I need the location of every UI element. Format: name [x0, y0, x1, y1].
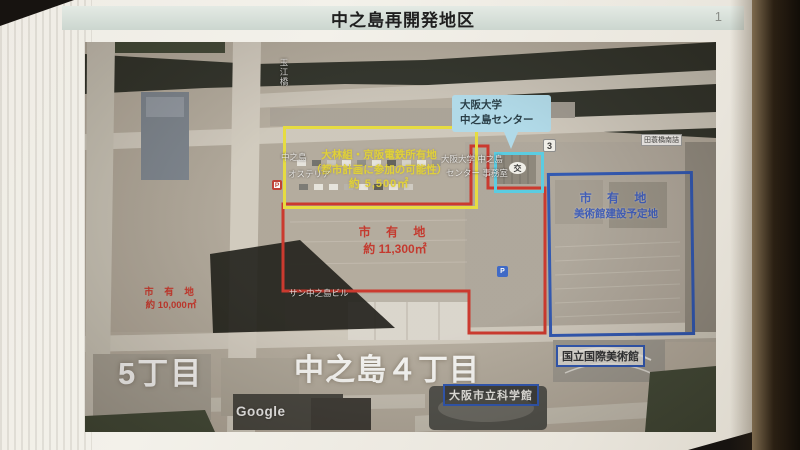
- document-page: 中之島再開発地区 1: [0, 0, 756, 450]
- red-west-parcel-text: 市 有 地 約 10,000㎡: [123, 286, 219, 313]
- label-science-museum: 大阪市立科学館: [443, 384, 539, 406]
- route-number-marker: 3: [543, 139, 556, 152]
- district-label-5chome: 5丁目: [118, 348, 203, 393]
- map-label-handai-office-2: センター 事務室: [446, 167, 508, 179]
- page-number: 1: [715, 9, 722, 24]
- blue-parcel-text: 市 有 地 美術館建設予定地: [557, 190, 675, 221]
- map-label-bridge: 玉江橋: [278, 58, 290, 87]
- callout-line1: 大阪大学: [460, 98, 551, 113]
- red-area: 約 11,300㎡: [337, 241, 453, 258]
- page-title: 中之島再開発地区: [331, 6, 475, 31]
- map-label-handai-office-1: 大阪大学 中之島: [441, 153, 503, 165]
- parking-icon-blue: P: [497, 266, 508, 277]
- red-parcel-text: 市 有 地 約 11,300㎡: [337, 224, 453, 258]
- photo-scene: 中之島再開発地区 1: [0, 0, 800, 450]
- yellow-owner: 大林組・京阪電鉄所有地: [293, 148, 465, 163]
- dark-corner-bottom-right: [688, 431, 756, 450]
- red-label: 市 有 地: [337, 224, 453, 241]
- handai-center-callout: 大阪大学 中之島センター: [452, 95, 551, 132]
- district-label-nakanoshima4: 中之島４丁目: [294, 345, 480, 389]
- callout-tail: [504, 132, 518, 149]
- map-label-osteria: オステリア: [288, 168, 331, 180]
- parking-icon-red: P: [272, 180, 282, 190]
- page-header: 中之島再開発地区 1: [62, 6, 744, 30]
- satellite-map: 大阪大学 中之島センター 大林組・京阪電鉄所有地 （都市計画に参加の可能性） 約…: [85, 42, 716, 432]
- red-west-area: 約 10,000㎡: [123, 299, 219, 312]
- koban-icon: 交: [509, 162, 526, 174]
- map-label-nakanoshima: 中之島: [281, 151, 307, 163]
- red-west-label: 市 有 地: [123, 286, 219, 299]
- map-label-building: サン中之島ビル: [289, 287, 349, 299]
- blue-label: 市 有 地: [557, 190, 675, 207]
- callout-line2: 中之島センター: [460, 113, 551, 128]
- paper-scan-texture: [0, 0, 92, 450]
- blue-use: 美術館建設予定地: [557, 207, 675, 222]
- label-national-art-museum: 国立国際美術館: [556, 345, 645, 367]
- map-label-intersection: 田蓑橋南詰: [641, 134, 682, 146]
- google-logo: Google: [236, 404, 286, 419]
- table-background: [752, 0, 800, 450]
